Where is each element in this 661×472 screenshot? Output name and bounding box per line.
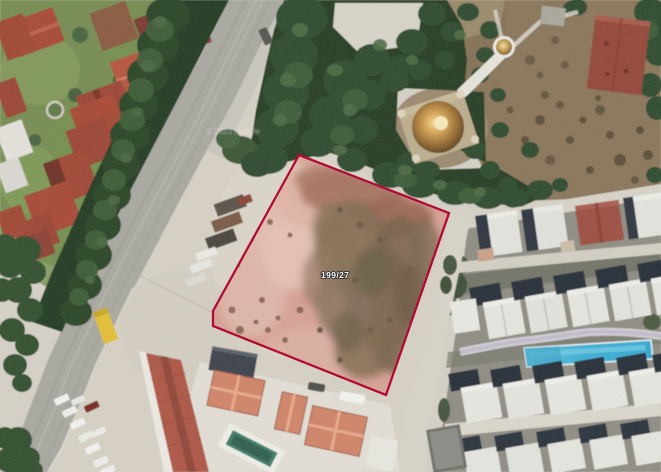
svg-text:199/27: 199/27 xyxy=(321,270,349,280)
svg-text:© 2023 Google: © 2023 Google xyxy=(206,127,260,136)
